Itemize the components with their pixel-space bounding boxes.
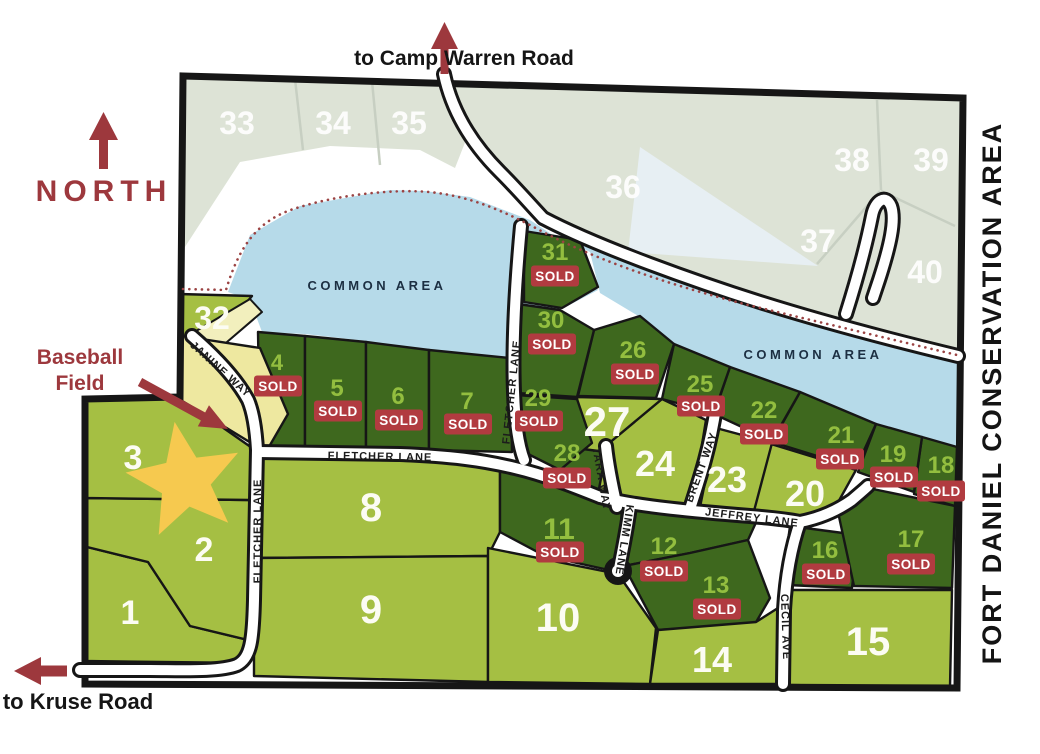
svg-text:SOLD: SOLD	[806, 567, 846, 582]
lot-10-number: 10	[536, 596, 581, 640]
street-label-cecil-ave: CECIL AVE	[778, 594, 792, 661]
lot-31-sold-badge: SOLD	[531, 266, 579, 287]
baseball-field-label-line2: Field	[55, 372, 104, 395]
kruse-arrow-shaft	[39, 666, 67, 677]
svg-text:SOLD: SOLD	[697, 602, 737, 617]
svg-text:SOLD: SOLD	[379, 413, 419, 428]
lot-26-sold-badge: SOLD	[611, 364, 659, 385]
lot-36-number: 36	[605, 169, 641, 205]
lot-35-number: 35	[391, 105, 427, 141]
common-area-label-west: COMMON AREA	[307, 278, 446, 293]
lot-22-sold-badge: SOLD	[740, 424, 788, 445]
svg-text:SOLD: SOLD	[615, 367, 655, 382]
lot-4-number: 4	[271, 350, 284, 375]
svg-text:SOLD: SOLD	[547, 471, 587, 486]
lot-28-number: 28	[554, 440, 581, 467]
svg-text:SOLD: SOLD	[318, 404, 358, 419]
lot-9-number: 9	[360, 588, 382, 632]
camp-warren-label: to Camp Warren Road	[354, 47, 574, 70]
svg-text:SOLD: SOLD	[744, 427, 784, 442]
svg-text:SOLD: SOLD	[681, 399, 721, 414]
lot-12-sold-badge: SOLD	[640, 561, 688, 582]
svg-text:SOLD: SOLD	[258, 379, 298, 394]
svg-text:SOLD: SOLD	[921, 484, 961, 499]
lot-19-sold-badge: SOLD	[870, 467, 918, 488]
lot-25-sold-badge: SOLD	[677, 396, 725, 417]
street-label-fletcher-vertical-west: FLETCHER LANE	[252, 479, 264, 584]
street-label-fletcher-horizontal: FLETCHER LANE	[328, 450, 433, 464]
lot-30-number: 30	[538, 307, 565, 334]
lot-23-number: 23	[707, 459, 747, 500]
lot-21-number: 21	[828, 422, 855, 449]
lot-19-number: 19	[880, 441, 907, 468]
map-canvas: FLETCHER LANE FLETCHER LANE FLETCHER LAN…	[0, 0, 1040, 754]
lot-11-sold-badge: SOLD	[536, 542, 584, 563]
lot-16-sold-badge: SOLD	[802, 564, 850, 585]
svg-text:SOLD: SOLD	[519, 414, 559, 429]
lot-33-number: 33	[219, 105, 255, 141]
lot-5-sold-badge: SOLD	[314, 401, 362, 422]
lot-21-sold-badge: SOLD	[816, 449, 864, 470]
camp-warren-arrow-icon	[431, 22, 458, 49]
lot-16-number: 16	[812, 537, 839, 564]
lot-32-number: 32	[194, 300, 230, 336]
baseball-field-label-line1: Baseball	[37, 346, 123, 369]
lot-8-number: 8	[360, 486, 382, 530]
lot-14-number: 14	[692, 639, 732, 680]
lot-15-number: 15	[846, 620, 891, 664]
lot-20-number: 20	[785, 473, 825, 514]
common-area-label-east: COMMON AREA	[743, 347, 882, 362]
kruse-arrow-icon	[14, 657, 41, 685]
svg-text:SOLD: SOLD	[820, 452, 860, 467]
svg-text:SOLD: SOLD	[874, 470, 914, 485]
lot-6-sold-badge: SOLD	[375, 410, 423, 431]
svg-text:SOLD: SOLD	[540, 545, 580, 560]
north-indicator: NORTH	[36, 112, 173, 208]
north-label: NORTH	[36, 175, 173, 208]
lot-13-sold-badge: SOLD	[693, 599, 741, 620]
lot-7-sold-badge: SOLD	[444, 414, 492, 435]
lot-6-number: 6	[391, 383, 404, 410]
lot-1-number: 1	[121, 594, 140, 632]
lot-25-number: 25	[687, 371, 714, 398]
lot-18-sold-badge: SOLD	[917, 481, 965, 502]
svg-text:SOLD: SOLD	[448, 417, 488, 432]
lot-27-number: 27	[584, 398, 631, 445]
svg-text:SOLD: SOLD	[535, 269, 575, 284]
lot-34-number: 34	[315, 105, 351, 141]
lot-17-sold-badge: SOLD	[887, 554, 935, 575]
lot-28-sold-badge: SOLD	[543, 468, 591, 489]
svg-text:SOLD: SOLD	[891, 557, 931, 572]
camp-warren-indicator: to Camp Warren Road	[354, 22, 574, 74]
lot-3-number: 3	[124, 439, 143, 477]
lot-11-number: 11	[543, 513, 575, 546]
lot-38-number: 38	[834, 142, 870, 178]
lot-26-number: 26	[620, 337, 647, 364]
lot-31-number: 31	[542, 239, 569, 266]
lot-12-number: 12	[651, 533, 678, 560]
lot-22-number: 22	[751, 397, 778, 424]
conservation-area-label: FORT DANIEL CONSERVATION AREA	[977, 122, 1007, 665]
lot-39-number: 39	[913, 142, 949, 178]
lot-24-number: 24	[635, 443, 675, 484]
lot-7-number: 7	[460, 388, 473, 415]
lot-29-number: 29	[525, 385, 552, 412]
lot-5-number: 5	[330, 375, 343, 402]
north-arrow-shaft	[99, 137, 108, 169]
svg-text:SOLD: SOLD	[644, 564, 684, 579]
lot-17-number: 17	[898, 526, 925, 553]
kruse-road-label: to Kruse Road	[3, 689, 153, 714]
lot-2-number: 2	[195, 531, 214, 569]
lot-30-sold-badge: SOLD	[528, 334, 576, 355]
lot-40-number: 40	[907, 254, 943, 290]
north-arrow-icon	[89, 112, 118, 140]
svg-text:SOLD: SOLD	[532, 337, 572, 352]
lot-13-number: 13	[703, 572, 730, 599]
lot-37-number: 37	[800, 223, 836, 259]
subdivision-map: FLETCHER LANE FLETCHER LANE FLETCHER LAN…	[0, 0, 1040, 754]
lot-4-sold-badge: SOLD	[254, 376, 302, 397]
lot-18-number: 18	[928, 452, 955, 479]
lot-29-sold-badge: SOLD	[515, 411, 563, 432]
